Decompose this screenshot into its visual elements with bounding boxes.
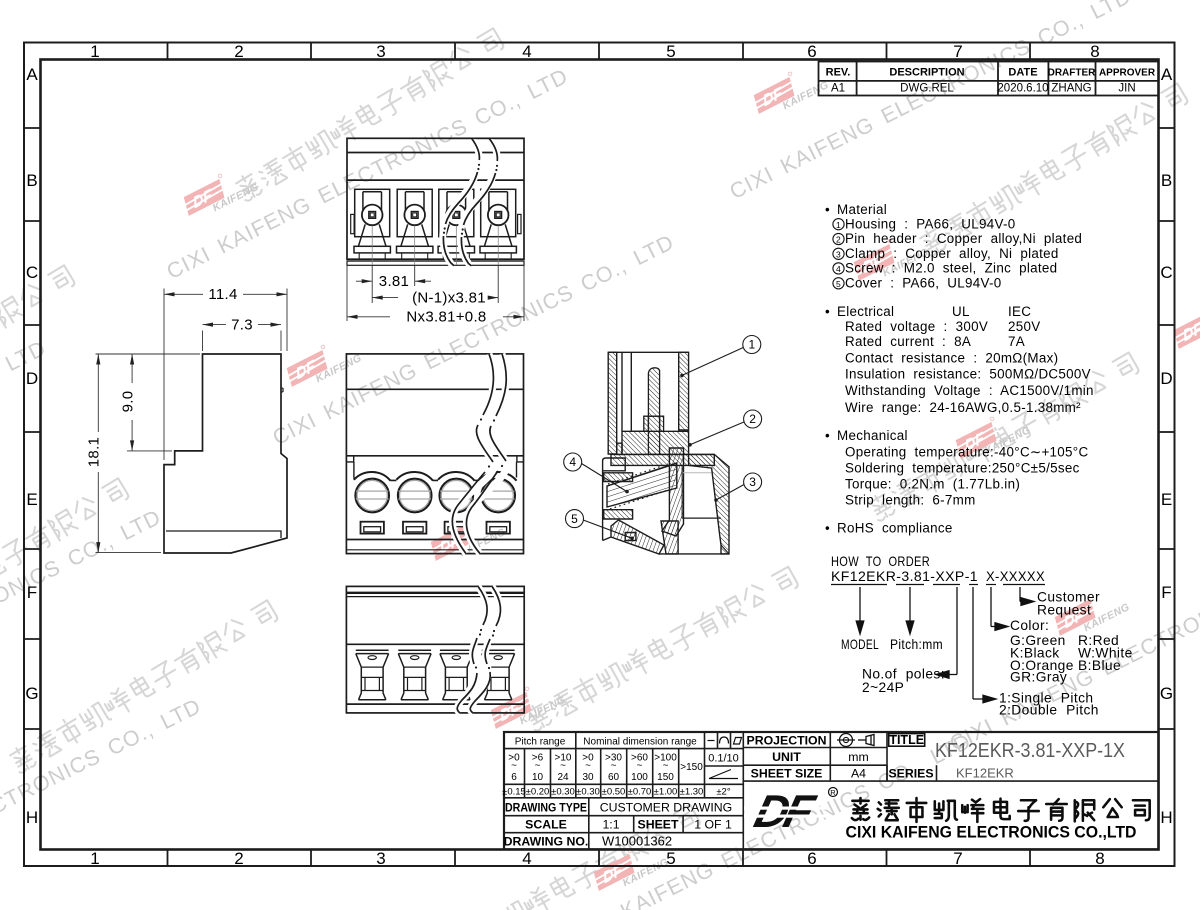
svg-text:Operating temperature:-40°C∼+1: Operating temperature:-40°C∼+105°C [845,445,1088,460]
svg-text:2: 2 [836,235,841,245]
svg-text:B: B [26,171,37,190]
svg-text:6: 6 [807,849,816,868]
svg-text:Screw : M2.0 steel, Zinc plate: Screw : M2.0 steel, Zinc plated [845,261,1057,276]
svg-text:Pitch:mm: Pitch:mm [890,637,943,652]
svg-text:±1.00: ±1.00 [654,787,678,798]
svg-text:60: 60 [608,772,620,783]
svg-text:SCALE: SCALE [525,818,567,832]
svg-text:H: H [26,808,38,827]
svg-text:2020.6.10: 2020.6.10 [997,83,1048,95]
svg-text:KF12EKR: KF12EKR [956,766,1014,781]
svg-text:Rated voltage : 300V: Rated voltage : 300V [845,319,988,334]
svg-text:DWG.REL: DWG.REL [900,83,954,95]
svg-text:~: ~ [560,761,566,772]
svg-text:7: 7 [953,42,962,61]
svg-text:A1: A1 [831,83,845,95]
svg-text:SERIES: SERIES [888,767,933,781]
svg-text:~: ~ [611,761,617,772]
svg-text:18.1: 18.1 [86,437,103,467]
svg-text:±1.30: ±1.30 [680,787,704,798]
svg-text:D: D [1160,369,1172,388]
svg-text:C: C [26,263,38,282]
svg-text:DRAFTER: DRAFTER [1048,68,1097,79]
svg-text:7A: 7A [1008,334,1025,349]
svg-text:±0.50: ±0.50 [602,787,626,798]
svg-text:~: ~ [535,761,541,772]
svg-text:F: F [27,583,37,602]
svg-text:F: F [1161,583,1171,602]
svg-text:X-XXXXX: X-XXXXX [986,569,1045,584]
svg-text:ZHANG: ZHANG [1051,83,1091,95]
svg-text:6: 6 [511,772,517,783]
svg-text:JIN: JIN [1118,83,1135,95]
svg-text:~: ~ [511,761,517,772]
svg-text:Pitch range: Pitch range [515,737,566,748]
svg-text:3.81: 3.81 [379,273,409,290]
svg-text:2: 2 [234,42,243,61]
svg-text:7.3: 7.3 [231,316,253,333]
svg-text:3: 3 [749,475,756,489]
svg-text:•: • [825,202,830,217]
svg-text:KF12EKR-3.81-XXP-1X: KF12EKR-3.81-XXP-1X [935,740,1125,762]
svg-text:250V: 250V [1008,319,1040,334]
svg-text:•: • [825,304,830,319]
svg-text:A: A [26,65,38,84]
svg-text:11.4: 11.4 [208,286,237,303]
svg-text:Torque: 0.2N.m (1.77Lb.in): Torque: 0.2N.m (1.77Lb.in) [845,477,1020,492]
svg-text:E: E [26,490,37,509]
svg-text:1: 1 [836,220,841,230]
svg-text:Pin header : Copper alloy,Ni p: Pin header : Copper alloy,Ni plated [845,231,1082,246]
svg-text:RoHS compliance: RoHS compliance [837,521,953,536]
svg-text:A: A [1161,65,1173,84]
svg-text:1: 1 [90,849,99,868]
svg-text:2~24P: 2~24P [862,680,904,695]
svg-text:CIXI KAIFENG ELECTRONICS CO.,: CIXI KAIFENG ELECTRONICS CO., LTD [946,536,1200,756]
svg-text:Rated current : 8A: Rated current : 8A [845,334,971,349]
svg-text:HOW TO ORDER: HOW TO ORDER [831,554,930,569]
svg-text:Cover : PA66, UL94V-0: Cover : PA66, UL94V-0 [845,276,1002,291]
svg-text:4: 4 [569,455,576,469]
svg-text:Material: Material [837,202,887,217]
svg-text:D: D [26,369,38,388]
svg-text:10: 10 [532,772,544,783]
svg-text:Contact resistance : 20mΩ(Max): Contact resistance : 20mΩ(Max) [845,351,1058,366]
svg-text:B: B [1161,171,1172,190]
svg-text:Withstanding Voltage : AC1500V: Withstanding Voltage : AC1500V/1min [845,383,1094,398]
svg-text:~: ~ [637,761,643,772]
svg-text:±0.30: ±0.30 [551,787,575,798]
svg-text:APPROVER: APPROVER [1099,68,1156,79]
svg-text:5: 5 [571,512,578,526]
svg-text:Wire range: 24-16AWG,0.5-1.38m: Wire range: 24-16AWG,0.5-1.38mm² [845,400,1081,415]
svg-text:mm: mm [848,750,869,764]
svg-text:150: 150 [657,772,674,783]
svg-text:CUSTOMER DRAWING: CUSTOMER DRAWING [600,801,733,815]
svg-text:0.1/10: 0.1/10 [708,753,739,765]
svg-text:Color:: Color: [1010,618,1049,633]
svg-text:Strip length: 6-7mm: Strip length: 6-7mm [845,493,976,508]
svg-text:W10001362: W10001362 [602,834,672,849]
svg-text:4: 4 [522,42,531,61]
svg-text:100: 100 [631,772,648,783]
svg-text:8: 8 [1090,42,1099,61]
svg-text:±0.30: ±0.30 [576,787,600,798]
svg-text:(N-1)x3.81: (N-1)x3.81 [412,289,486,306]
svg-text:5: 5 [666,849,675,868]
svg-text:KF12EKR-3.81-XXP-1: KF12EKR-3.81-XXP-1 [831,569,978,584]
svg-text:•: • [825,521,830,536]
svg-text:CIXI KAIFENG ELECTRONICS CO.,: CIXI KAIFENG ELECTRONICS CO., LTD [163,64,572,284]
svg-text:Electrical: Electrical [837,304,894,319]
svg-text:Soldering temperature:250°C±5/: Soldering temperature:250°C±5/5sec [845,461,1080,476]
svg-text:1: 1 [90,42,99,61]
svg-text:±2°: ±2° [716,787,730,798]
svg-text:4: 4 [836,264,841,274]
svg-text:>150: >150 [680,762,703,773]
svg-text:H: H [1160,808,1172,827]
svg-text:G: G [1160,684,1173,703]
svg-text:Clamp : Copper alloy, Ni plate: Clamp : Copper alloy, Ni plated [845,246,1059,261]
svg-text:8: 8 [1095,849,1104,868]
svg-text:Nominal dimension range: Nominal dimension range [583,737,697,748]
svg-text:~: ~ [585,761,591,772]
svg-text:6: 6 [807,42,816,61]
svg-text:2:Double Pitch: 2:Double Pitch [999,703,1099,718]
svg-text:SHEET: SHEET [638,818,679,832]
svg-text:G: G [25,684,38,703]
svg-text:2: 2 [749,412,756,426]
svg-text:~: ~ [663,761,669,772]
svg-text:DATE: DATE [1008,67,1037,79]
svg-text:SHEET SIZE: SHEET SIZE [751,767,823,781]
svg-text:1 OF 1: 1 OF 1 [694,818,732,832]
svg-text:24: 24 [557,772,569,783]
svg-text:30: 30 [582,772,594,783]
svg-text:±0.70: ±0.70 [628,787,652,798]
svg-text:Insulation resistance: 500MΩ/D: Insulation resistance: 500MΩ/DC500V [845,367,1091,382]
svg-text:±0.15: ±0.15 [502,787,526,798]
svg-text:3: 3 [836,250,841,260]
svg-text:•: • [825,428,830,443]
svg-text:Request: Request [1037,603,1091,618]
svg-text:Nx3.81+0.8: Nx3.81+0.8 [406,309,486,326]
svg-text:3: 3 [376,42,385,61]
svg-text:UL: UL [952,304,970,319]
svg-text:CIXI KAIFENG ELECTRONICS CO.,L: CIXI KAIFENG ELECTRONICS CO.,LTD [846,823,1137,842]
svg-text:Housing : PA66, UL94V-0: Housing : PA66, UL94V-0 [845,216,1016,231]
svg-text:IEC: IEC [1008,304,1031,319]
svg-text:Mechanical: Mechanical [837,428,908,443]
svg-text:9.0: 9.0 [120,391,137,413]
svg-text:DESCRIPTION: DESCRIPTION [889,67,964,79]
svg-text:A4: A4 [851,767,866,781]
svg-text:C: C [1160,263,1172,282]
svg-text:UNIT: UNIT [772,750,801,764]
svg-text:B:Blue: B:Blue [1078,658,1121,673]
svg-text:±0.20: ±0.20 [526,787,550,798]
svg-text:3: 3 [376,849,385,868]
svg-text:MODEL: MODEL [841,637,879,652]
svg-text:E: E [1161,490,1172,509]
svg-text:TITLE: TITLE [889,733,924,747]
svg-text:PROJECTION: PROJECTION [747,734,827,748]
svg-text:REV.: REV. [826,67,851,79]
svg-text:4: 4 [522,849,531,868]
svg-text:1:1: 1:1 [602,818,619,832]
svg-text:R: R [830,788,836,797]
svg-text:1: 1 [748,338,755,352]
svg-text:DRAWING TYPE: DRAWING TYPE [505,801,587,815]
svg-text:5: 5 [666,42,675,61]
svg-text:DRAWING NO.: DRAWING NO. [504,835,589,849]
svg-text:GR:Gray: GR:Gray [1010,670,1067,685]
svg-text:5: 5 [836,279,841,289]
svg-text:2: 2 [234,849,243,868]
svg-text:7: 7 [953,849,962,868]
